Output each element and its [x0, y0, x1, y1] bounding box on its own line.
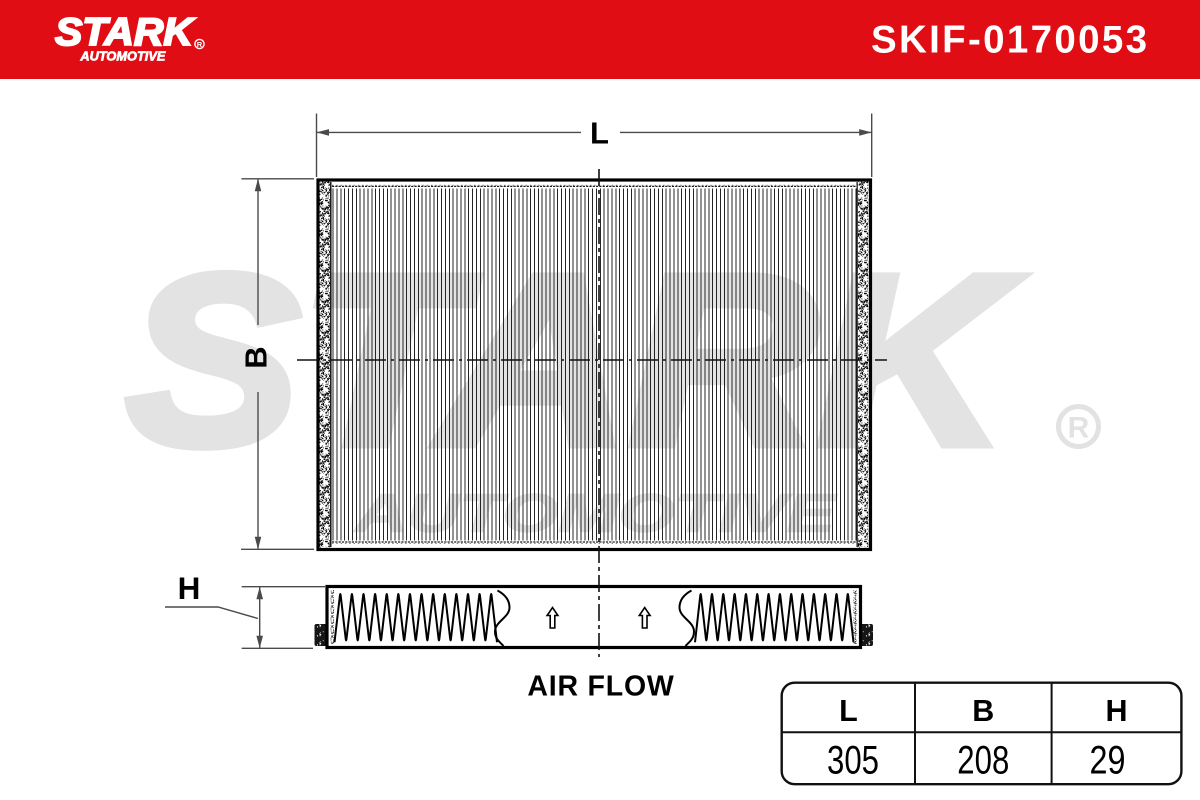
svg-text:AUTOMOTIVE: AUTOMOTIVE — [79, 48, 165, 63]
svg-text:R: R — [197, 40, 203, 49]
svg-text:SKIF-0170053: SKIF-0170053 — [871, 19, 1147, 62]
svg-text:AIR FLOW: AIR FLOW — [527, 671, 674, 703]
svg-text:L: L — [839, 694, 858, 728]
svg-text:AUTOMOTIVE: AUTOMOTIVE — [352, 484, 837, 544]
svg-text:305: 305 — [827, 739, 879, 783]
svg-text:H: H — [178, 570, 201, 606]
svg-text:B: B — [972, 694, 994, 728]
svg-text:208: 208 — [957, 739, 1009, 783]
svg-text:29: 29 — [1090, 739, 1126, 783]
svg-text:H: H — [1105, 694, 1127, 728]
svg-text:B: B — [239, 346, 274, 368]
svg-text:R: R — [1068, 412, 1090, 445]
svg-text:L: L — [590, 116, 609, 151]
